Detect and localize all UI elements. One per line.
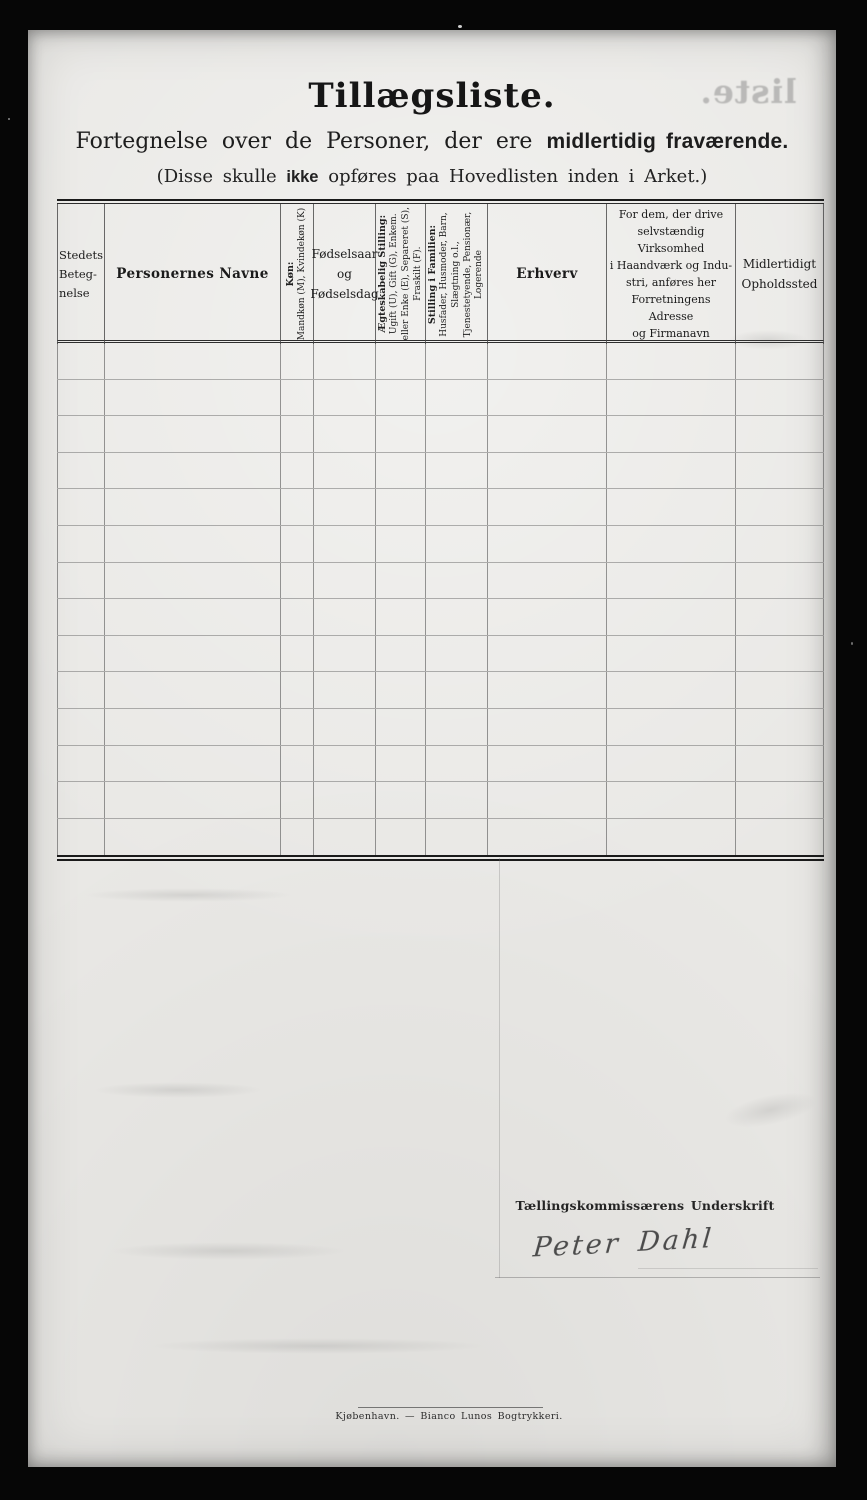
table-row bbox=[57, 599, 824, 636]
table-cell-stedets-betegnelse bbox=[57, 416, 105, 452]
table-cell-koen bbox=[281, 563, 314, 599]
table-cell-virksomhed bbox=[607, 782, 736, 818]
table-cell-personernes-navne bbox=[105, 709, 281, 745]
subtitle-regular: Fortegnelse over de Personer, der ere bbox=[76, 129, 533, 154]
table-cell-stedets-betegnelse bbox=[57, 636, 105, 672]
column-header-erhverv: Erhverv bbox=[488, 204, 607, 344]
table-cell-foedselsaar bbox=[314, 782, 376, 818]
table-row bbox=[57, 343, 824, 380]
table-row bbox=[57, 489, 824, 526]
table-cell-personernes-navne bbox=[105, 672, 281, 708]
table-cell-virksomhed bbox=[607, 819, 736, 856]
table-cell-virksomhed bbox=[607, 453, 736, 489]
table-cell-stedets-betegnelse bbox=[57, 746, 105, 782]
scanned-census-page: liste. Tillægsliste. Fortegnelse over de… bbox=[0, 0, 867, 1500]
table-cell-koen bbox=[281, 672, 314, 708]
table-cell-stilling-i-familien bbox=[426, 453, 488, 489]
table-row bbox=[57, 380, 824, 417]
table-cell-stedets-betegnelse bbox=[57, 819, 105, 856]
column-header-stilling-i-familien: Stilling i Familien: Husfader, Husmoder,… bbox=[426, 204, 488, 344]
note-bold: ikke bbox=[286, 168, 318, 186]
table-cell-stedets-betegnelse bbox=[57, 343, 105, 379]
table-cell-foedselsaar bbox=[314, 819, 376, 856]
bleed-through-smudge bbox=[83, 888, 293, 902]
form-note: (Disse skulle ikke opføres paa Hovedlist… bbox=[28, 166, 836, 187]
table-cell-erhverv bbox=[488, 782, 607, 818]
table-cell-personernes-navne bbox=[105, 563, 281, 599]
table-cell-virksomhed bbox=[607, 343, 736, 379]
table-cell-personernes-navne bbox=[105, 746, 281, 782]
bleed-through-line bbox=[638, 1268, 818, 1269]
scan-dust-speck bbox=[851, 642, 853, 645]
table-cell-virksomhed bbox=[607, 672, 736, 708]
table-cell-stilling-i-familien bbox=[426, 709, 488, 745]
table-cell-virksomhed bbox=[607, 526, 736, 562]
table-cell-virksomhed bbox=[607, 709, 736, 745]
table-cell-personernes-navne bbox=[105, 599, 281, 635]
table-cell-aegteskabelig-stilling bbox=[376, 819, 426, 856]
table-cell-erhverv bbox=[488, 526, 607, 562]
table-cell-aegteskabelig-stilling bbox=[376, 416, 426, 452]
table-cell-virksomhed bbox=[607, 489, 736, 525]
table-cell-opholdssted bbox=[736, 782, 824, 818]
table-cell-foedselsaar bbox=[314, 489, 376, 525]
table-cell-personernes-navne bbox=[105, 636, 281, 672]
table-cell-stilling-i-familien bbox=[426, 489, 488, 525]
column-header-stedets-betegnelse: Stedets Beteg- nelse bbox=[57, 204, 105, 344]
table-cell-opholdssted bbox=[736, 636, 824, 672]
table-cell-personernes-navne bbox=[105, 526, 281, 562]
table-row bbox=[57, 563, 824, 600]
table-cell-opholdssted bbox=[736, 672, 824, 708]
form-title: Tillægsliste. bbox=[28, 76, 836, 116]
note-suffix: opføres paa Hovedlisten inden i Arket.) bbox=[328, 166, 707, 187]
table-cell-foedselsaar bbox=[314, 416, 376, 452]
table-cell-opholdssted bbox=[736, 453, 824, 489]
table-cell-stedets-betegnelse bbox=[57, 526, 105, 562]
table-cell-foedselsaar bbox=[314, 380, 376, 416]
table-cell-erhverv bbox=[488, 380, 607, 416]
bleed-through-smudge bbox=[721, 1085, 820, 1134]
table-cell-stedets-betegnelse bbox=[57, 489, 105, 525]
table-cell-erhverv bbox=[488, 636, 607, 672]
commissioner-signature: Peter Dahl bbox=[532, 1223, 716, 1264]
table-cell-stilling-i-familien bbox=[426, 782, 488, 818]
table-cell-erhverv bbox=[488, 599, 607, 635]
table-cell-stedets-betegnelse bbox=[57, 453, 105, 489]
table-cell-koen bbox=[281, 453, 314, 489]
table-cell-erhverv bbox=[488, 416, 607, 452]
subtitle-bold: midlertidig fraværende. bbox=[546, 130, 788, 153]
table-cell-foedselsaar bbox=[314, 746, 376, 782]
table-row bbox=[57, 782, 824, 819]
bleed-through-smudge bbox=[108, 1242, 348, 1260]
table-cell-aegteskabelig-stilling bbox=[376, 599, 426, 635]
table-cell-stilling-i-familien bbox=[426, 416, 488, 452]
table-cell-aegteskabelig-stilling bbox=[376, 709, 426, 745]
table-cell-aegteskabelig-stilling bbox=[376, 636, 426, 672]
table-cell-koen bbox=[281, 819, 314, 856]
table-row bbox=[57, 819, 824, 856]
table-cell-stedets-betegnelse bbox=[57, 782, 105, 818]
table-cell-stedets-betegnelse bbox=[57, 599, 105, 635]
table-cell-opholdssted bbox=[736, 416, 824, 452]
table-cell-stedets-betegnelse bbox=[57, 380, 105, 416]
table-row bbox=[57, 526, 824, 563]
bleed-through-smudge bbox=[148, 1338, 488, 1354]
table-cell-personernes-navne bbox=[105, 489, 281, 525]
table-cell-virksomhed bbox=[607, 563, 736, 599]
census-table: Stedets Beteg- nelse Personernes Navne K… bbox=[57, 199, 824, 861]
column-header-koen: Køn: Mandkøn (M), Kvindekøn (K) bbox=[281, 204, 314, 344]
table-cell-foedselsaar bbox=[314, 599, 376, 635]
table-cell-stilling-i-familien bbox=[426, 343, 488, 379]
table-cell-aegteskabelig-stilling bbox=[376, 672, 426, 708]
table-cell-virksomhed bbox=[607, 746, 736, 782]
table-cell-personernes-navne bbox=[105, 343, 281, 379]
table-cell-virksomhed bbox=[607, 636, 736, 672]
column-header-aegteskabelig-stilling: Ægteskabelig Stilling: Ugift (U), Gift (… bbox=[376, 204, 426, 344]
note-prefix: (Disse skulle bbox=[157, 166, 277, 187]
table-cell-opholdssted bbox=[736, 380, 824, 416]
table-row bbox=[57, 709, 824, 746]
table-cell-foedselsaar bbox=[314, 343, 376, 379]
table-cell-opholdssted bbox=[736, 343, 824, 379]
table-cell-foedselsaar bbox=[314, 672, 376, 708]
table-cell-personernes-navne bbox=[105, 782, 281, 818]
table-cell-stilling-i-familien bbox=[426, 526, 488, 562]
table-cell-aegteskabelig-stilling bbox=[376, 489, 426, 525]
table-body bbox=[57, 343, 824, 855]
table-cell-koen bbox=[281, 782, 314, 818]
table-row bbox=[57, 672, 824, 709]
table-header-row: Stedets Beteg- nelse Personernes Navne K… bbox=[57, 204, 824, 340]
table-cell-koen bbox=[281, 526, 314, 562]
table-cell-koen bbox=[281, 343, 314, 379]
table-cell-aegteskabelig-stilling bbox=[376, 343, 426, 379]
table-cell-erhverv bbox=[488, 453, 607, 489]
table-cell-erhverv bbox=[488, 489, 607, 525]
bleed-through-line bbox=[499, 858, 500, 1278]
table-cell-foedselsaar bbox=[314, 453, 376, 489]
table-cell-erhverv bbox=[488, 563, 607, 599]
table-cell-stilling-i-familien bbox=[426, 636, 488, 672]
table-cell-aegteskabelig-stilling bbox=[376, 380, 426, 416]
census-form-paper: liste. Tillægsliste. Fortegnelse over de… bbox=[28, 30, 836, 1467]
table-cell-virksomhed bbox=[607, 599, 736, 635]
signature-label: Tællingskommissærens Underskrift bbox=[516, 1198, 775, 1213]
table-cell-stedets-betegnelse bbox=[57, 672, 105, 708]
table-cell-aegteskabelig-stilling bbox=[376, 526, 426, 562]
table-row bbox=[57, 416, 824, 453]
column-header-foedselsaar: Fødselsaar og Fødselsdag bbox=[314, 204, 376, 344]
table-cell-foedselsaar bbox=[314, 636, 376, 672]
column-header-virksomhed: For dem, der drive selvstændig Virksomhe… bbox=[607, 204, 736, 344]
table-row bbox=[57, 636, 824, 673]
printer-imprint: Kjøbenhavn. — Bianco Lunos Bogtrykkeri. bbox=[335, 1411, 562, 1422]
table-cell-opholdssted bbox=[736, 489, 824, 525]
table-cell-stilling-i-familien bbox=[426, 563, 488, 599]
table-cell-virksomhed bbox=[607, 416, 736, 452]
table-cell-stedets-betegnelse bbox=[57, 563, 105, 599]
table-cell-foedselsaar bbox=[314, 709, 376, 745]
table-cell-erhverv bbox=[488, 819, 607, 856]
table-cell-foedselsaar bbox=[314, 563, 376, 599]
bleed-through-smudge bbox=[93, 1082, 263, 1098]
table-cell-opholdssted bbox=[736, 746, 824, 782]
table-cell-virksomhed bbox=[607, 380, 736, 416]
table-cell-personernes-navne bbox=[105, 453, 281, 489]
table-cell-stedets-betegnelse bbox=[57, 709, 105, 745]
table-cell-koen bbox=[281, 636, 314, 672]
table-cell-koen bbox=[281, 599, 314, 635]
table-cell-stilling-i-familien bbox=[426, 380, 488, 416]
table-cell-koen bbox=[281, 416, 314, 452]
table-cell-opholdssted bbox=[736, 819, 824, 856]
table-row bbox=[57, 453, 824, 490]
table-cell-stilling-i-familien bbox=[426, 819, 488, 856]
table-cell-koen bbox=[281, 489, 314, 525]
table-cell-aegteskabelig-stilling bbox=[376, 563, 426, 599]
scan-dust-speck bbox=[8, 118, 10, 120]
table-cell-stilling-i-familien bbox=[426, 746, 488, 782]
table-cell-personernes-navne bbox=[105, 380, 281, 416]
table-cell-opholdssted bbox=[736, 709, 824, 745]
table-cell-erhverv bbox=[488, 746, 607, 782]
table-cell-opholdssted bbox=[736, 599, 824, 635]
table-cell-aegteskabelig-stilling bbox=[376, 453, 426, 489]
table-cell-stilling-i-familien bbox=[426, 672, 488, 708]
column-header-personernes-navne: Personernes Navne bbox=[105, 204, 281, 344]
table-cell-opholdssted bbox=[736, 563, 824, 599]
table-cell-stilling-i-familien bbox=[426, 599, 488, 635]
form-subtitle: Fortegnelse over de Personer, der ere mi… bbox=[28, 129, 836, 154]
imprint-rule bbox=[358, 1407, 543, 1408]
table-cell-koen bbox=[281, 746, 314, 782]
table-cell-erhverv bbox=[488, 672, 607, 708]
table-cell-erhverv bbox=[488, 709, 607, 745]
column-header-opholdssted: Midlertidigt Opholdssted bbox=[736, 204, 824, 344]
scan-dust-speck bbox=[458, 25, 462, 28]
table-cell-aegteskabelig-stilling bbox=[376, 746, 426, 782]
table-cell-aegteskabelig-stilling bbox=[376, 782, 426, 818]
table-cell-personernes-navne bbox=[105, 416, 281, 452]
table-cell-opholdssted bbox=[736, 526, 824, 562]
table-cell-foedselsaar bbox=[314, 526, 376, 562]
table-row bbox=[57, 746, 824, 783]
table-cell-koen bbox=[281, 709, 314, 745]
table-cell-koen bbox=[281, 380, 314, 416]
signature-line bbox=[495, 1277, 820, 1278]
table-cell-personernes-navne bbox=[105, 819, 281, 856]
table-cell-erhverv bbox=[488, 343, 607, 379]
